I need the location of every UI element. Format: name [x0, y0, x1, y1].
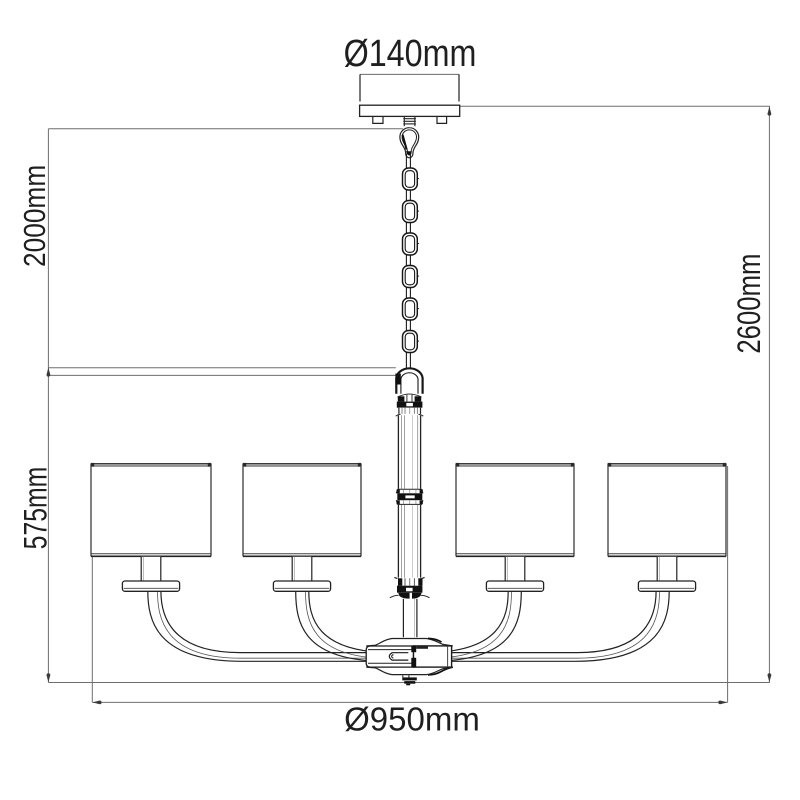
svg-text:Ø950mm: Ø950mm — [344, 701, 480, 738]
svg-text:575mm: 575mm — [18, 467, 54, 550]
svg-text:2000mm: 2000mm — [18, 165, 52, 267]
svg-text:Ø140mm: Ø140mm — [344, 33, 477, 75]
svg-text:2600mm: 2600mm — [731, 254, 768, 354]
